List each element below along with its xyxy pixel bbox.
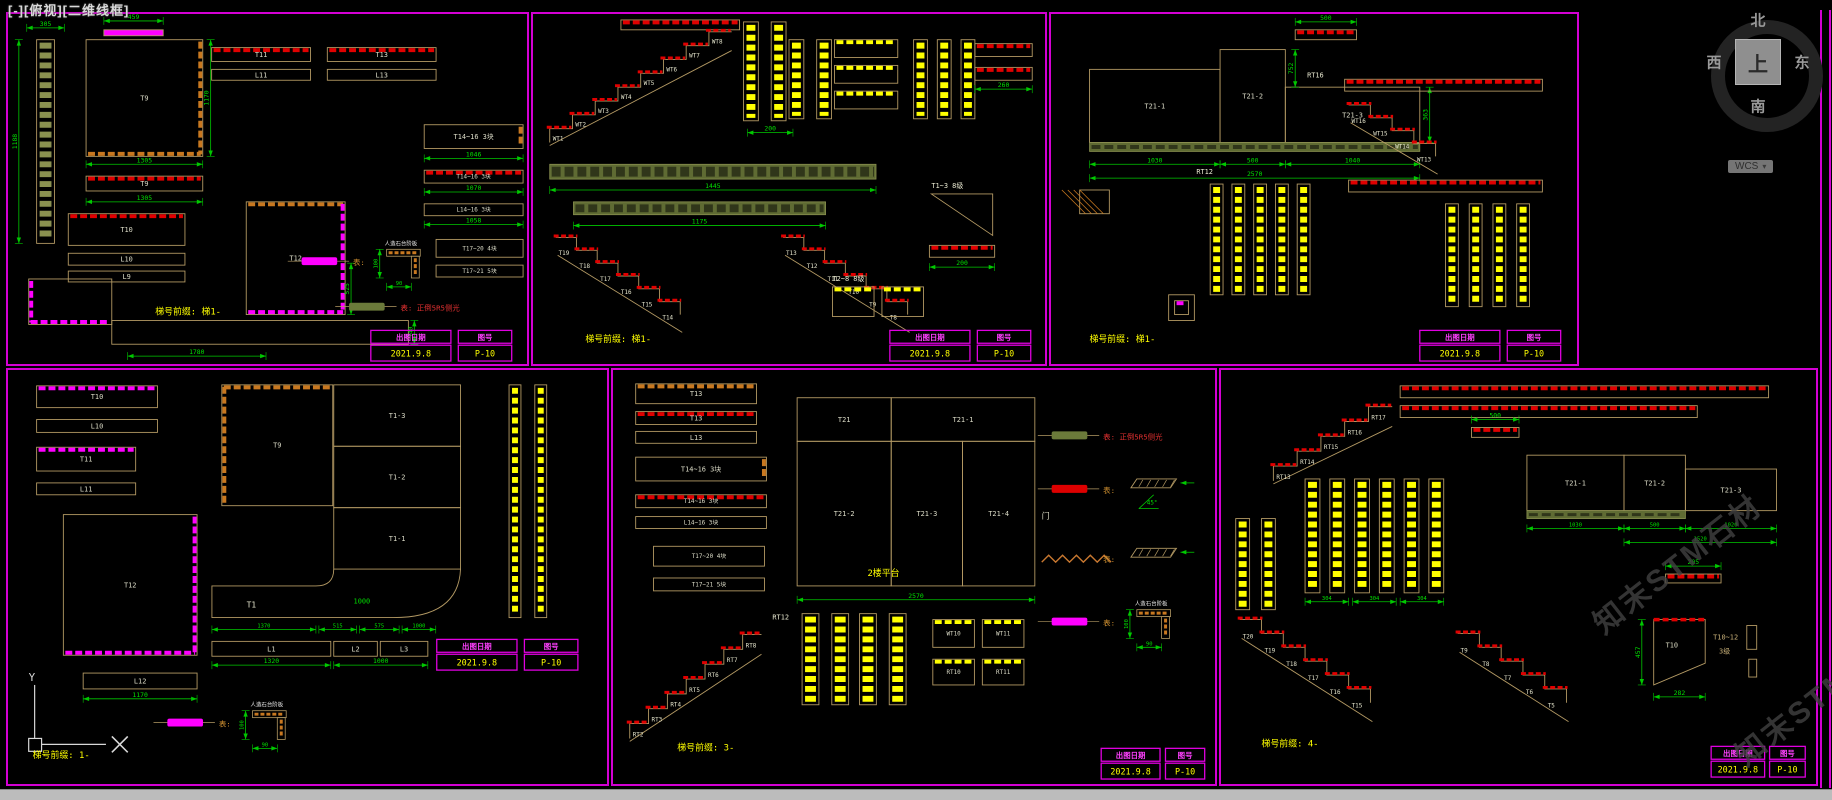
svg-text:RT5: RT5 [689, 687, 700, 694]
svg-text:T21-1: T21-1 [1565, 479, 1586, 487]
crosshatch-detail [1062, 190, 1109, 214]
svg-text:梯号前缀: 4-: 梯号前缀: 4- [1261, 737, 1318, 749]
part-outline [1295, 30, 1356, 40]
part-outline: T1-1 [334, 508, 461, 569]
svg-text:梯号前缀: 1-: 梯号前缀: 1- [33, 749, 90, 761]
dimension: 1305 [86, 194, 203, 206]
viewport-panel-5[interactable]: T13T13L13T14~16 3块T14~16 3块L14~16 3块T17~… [611, 368, 1217, 786]
dimension: 1170 [203, 40, 215, 157]
part-outline: RT10 [933, 659, 975, 685]
svg-text:1305: 1305 [137, 156, 153, 164]
svg-text:363: 363 [1422, 109, 1430, 121]
annotation-text: 梯号前缀: 3- [677, 741, 734, 753]
title-block: 出图日期图号2021.9.8P-10 [1101, 748, 1205, 779]
part-outline: T21-2 [797, 441, 891, 586]
svg-text:T1: T1 [247, 601, 257, 610]
annotation-text: 梯号前缀: 梯1- [155, 306, 221, 318]
svg-text:500: 500 [1247, 156, 1259, 164]
svg-text:2021.9.8: 2021.9.8 [1110, 767, 1151, 777]
svg-text:T8: T8 [1482, 661, 1490, 668]
svg-text:T6: T6 [1526, 689, 1534, 696]
part-outline [104, 30, 163, 36]
part-outline: T17~20 4块 [436, 239, 523, 257]
dimension: 1320 [212, 657, 331, 669]
svg-text:1780: 1780 [189, 348, 205, 356]
part-outline [1169, 295, 1195, 321]
view-cube-north[interactable]: 北 [1750, 10, 1765, 31]
svg-text:1000: 1000 [354, 598, 371, 606]
part-outline: T21-3 [1285, 87, 1419, 142]
dimension: 752 [1287, 50, 1299, 88]
dimension: 1000 [402, 624, 436, 634]
svg-text:T21-2: T21-2 [834, 510, 855, 518]
svg-text:1188: 1188 [11, 134, 19, 150]
legend-item: 表:人造石台阶板10090 [153, 701, 286, 753]
stair-run: T19T18T17T16T15T14 [554, 236, 683, 332]
svg-text:RT2: RT2 [633, 731, 644, 738]
part-outline [1349, 180, 1543, 192]
part-outline: T17~21 5块 [654, 578, 765, 591]
dimension: 1040 [1285, 156, 1419, 168]
part-outline [1345, 79, 1543, 91]
svg-text:90: 90 [1146, 641, 1153, 647]
hatched-strip [573, 202, 825, 215]
svg-text:T9: T9 [140, 180, 148, 188]
svg-text:WT10: WT10 [946, 630, 961, 637]
annotation-text: 梯号前缀: 梯1- [1090, 333, 1156, 345]
svg-text:T19: T19 [1264, 647, 1275, 654]
svg-text:P-10: P-10 [541, 658, 561, 668]
dimension: 304 [1305, 596, 1349, 606]
svg-text:L11: L11 [255, 71, 267, 79]
svg-text:90: 90 [262, 742, 269, 748]
svg-text:RT17: RT17 [1371, 415, 1386, 422]
svg-text:RT15: RT15 [1324, 444, 1339, 451]
svg-text:T21-3: T21-3 [1721, 486, 1742, 494]
annotation-text: RT16 [1307, 71, 1324, 79]
svg-text:RT12: RT12 [772, 614, 789, 622]
part-outline: RT11 [982, 659, 1024, 685]
svg-text:L12: L12 [134, 677, 147, 685]
part-outline: T21-1 [891, 398, 1035, 442]
svg-text:1175: 1175 [692, 218, 708, 226]
svg-text:1170: 1170 [132, 691, 148, 699]
annotation-text: 2楼平台 [867, 567, 899, 579]
svg-text:1305: 1305 [137, 194, 153, 202]
part-outline [929, 245, 994, 257]
view-cube-up[interactable]: 上 [1735, 39, 1781, 85]
svg-text:100: 100 [374, 259, 380, 269]
svg-text:T1-3: T1-3 [389, 412, 406, 420]
svg-text:出图日期: 出图日期 [915, 332, 945, 342]
part-outline: T9 [86, 40, 203, 157]
dimension: 1445 [550, 182, 876, 194]
dimension: 260 [975, 81, 1032, 93]
viewport-panel-2[interactable]: WT1WT2WT3WT4WT5WT6WT7WT826020014451175T1… [531, 12, 1047, 366]
svg-text:T8: T8 [890, 315, 898, 322]
svg-text:T1-2: T1-2 [389, 473, 406, 481]
svg-text:T5: T5 [1548, 703, 1556, 710]
part-outline: L9 [68, 271, 185, 282]
svg-text:出图日期: 出图日期 [1445, 332, 1475, 342]
svg-text:500: 500 [1320, 14, 1332, 22]
title-block: 出图日期图号2021.9.8P-10 [890, 330, 1031, 361]
svg-text:RT8: RT8 [746, 642, 757, 649]
svg-text:T12: T12 [124, 581, 137, 589]
svg-text:T9: T9 [869, 302, 877, 309]
svg-text:260: 260 [998, 81, 1010, 89]
part-outline: T10 [68, 214, 185, 246]
svg-text:2570: 2570 [1247, 170, 1263, 178]
hatched-bars [1236, 519, 1276, 610]
svg-text:2021.9.8: 2021.9.8 [457, 658, 497, 668]
svg-text:T18: T18 [1286, 661, 1297, 668]
viewport-panel-6[interactable]: RT13RT14RT15RT16RT17304304304500T21-1T21… [1219, 368, 1818, 786]
dimension: 305 [27, 20, 65, 32]
part-outline [29, 279, 112, 324]
part-outline: L1 [212, 641, 331, 656]
svg-text:WT1: WT1 [553, 136, 564, 143]
wcs-label: WCS [1735, 161, 1758, 172]
svg-text:梯号前缀: 梯1-: 梯号前缀: 梯1- [585, 333, 651, 345]
legend-item: 表: 正倒5R5侧光 [1038, 431, 1163, 441]
svg-text:WT11: WT11 [996, 630, 1011, 637]
svg-text:T21-1: T21-1 [953, 416, 974, 424]
part-outline: T21-1 [1090, 69, 1221, 142]
dimension: 575 [359, 624, 399, 634]
view-cube-east[interactable]: 东 [1794, 52, 1809, 73]
svg-text:200: 200 [764, 125, 776, 133]
svg-text:1370: 1370 [257, 624, 270, 630]
part-outline: T13 [327, 48, 436, 62]
hatched-bars [1210, 184, 1310, 295]
svg-text:T2~8 8级: T2~8 8级 [833, 274, 865, 283]
dimension: 1030 [1090, 156, 1221, 168]
dimension: 500 [1624, 522, 1685, 532]
svg-text:T17: T17 [1308, 675, 1319, 682]
part-outline: L14~16 3块 [424, 204, 523, 216]
svg-text:200: 200 [956, 259, 968, 267]
part-outline [834, 91, 897, 109]
svg-text:1058: 1058 [466, 217, 482, 225]
view-cube-south[interactable]: 南 [1750, 96, 1765, 117]
svg-text:T10: T10 [120, 226, 132, 234]
svg-text:T18: T18 [579, 263, 590, 270]
part-outline [975, 44, 1032, 57]
hatched-bars [914, 40, 975, 119]
svg-text:Y: Y [29, 671, 36, 684]
stair-run: T20T19T18T17T16T15 [1238, 618, 1373, 722]
part-outline: L10 [68, 253, 185, 265]
svg-text:梯号前缀: 梯1-: 梯号前缀: 梯1- [155, 306, 221, 318]
svg-text:RT10: RT10 [946, 669, 961, 676]
svg-text:T1-1: T1-1 [389, 535, 406, 543]
svg-text:RT16: RT16 [1348, 429, 1363, 436]
svg-text:100: 100 [1124, 619, 1130, 629]
svg-text:T13: T13 [786, 250, 797, 257]
wcs-selector[interactable]: WCS▾ [1728, 160, 1773, 173]
viewport-panel-4[interactable]: T10L10T11L11T12L121170T9T1-3T1-2T1-1T110… [6, 368, 609, 786]
svg-text:表: 正倒5R5侧光: 表: 正倒5R5侧光 [1103, 431, 1163, 441]
part-outline: T1-2 [334, 446, 461, 507]
part-outline: T21-1 [1527, 455, 1624, 510]
annotation-text: T1~3 8级 [931, 181, 963, 190]
dimension: 500 [1295, 14, 1356, 26]
title-block: 出图日期图号2021.9.8P-10 [371, 330, 512, 361]
svg-text:梯号前缀: 3-: 梯号前缀: 3- [677, 741, 734, 753]
dimension: 1370 [212, 624, 316, 634]
svg-text:T17~20 4块: T17~20 4块 [692, 552, 727, 560]
part-outline: L11 [37, 483, 136, 495]
part-outline: T13 [636, 412, 757, 425]
part-outline: T21 [797, 398, 891, 442]
svg-text:T10~12: T10~12 [1713, 633, 1738, 641]
stair-run: RT13RT14RT15RT16RT17 [1270, 405, 1392, 484]
legend-item: 表:人造石台阶板10090 [1038, 600, 1171, 652]
svg-text:出图日期: 出图日期 [1116, 750, 1146, 760]
dimension: 205 [1666, 558, 1721, 570]
svg-text:WT8: WT8 [712, 39, 723, 46]
annotation-text: 门 [1042, 511, 1050, 521]
svg-text:459: 459 [128, 13, 140, 21]
part-outline: L13 [327, 69, 436, 80]
part-outline: L11 [212, 69, 311, 80]
svg-text:500: 500 [1489, 412, 1501, 420]
svg-text:T13: T13 [375, 51, 387, 59]
view-cube[interactable]: 北 西 东 南 上 [1700, 6, 1816, 156]
svg-text:图号: 图号 [1178, 751, 1193, 760]
svg-text:WT3: WT3 [598, 108, 609, 115]
part-outline [1654, 620, 1706, 685]
dimension: 1058 [424, 217, 523, 229]
svg-text:T14~16 3块: T14~16 3块 [681, 465, 721, 474]
svg-text:T21: T21 [838, 416, 851, 424]
svg-text:T19: T19 [559, 250, 570, 257]
svg-text:T15: T15 [1352, 703, 1363, 710]
part-outline [975, 67, 1032, 80]
hatched-bars [1305, 479, 1444, 593]
svg-text:2021.9.8: 2021.9.8 [910, 349, 950, 359]
svg-text:RT6: RT6 [708, 672, 719, 679]
svg-text:RT14: RT14 [1300, 459, 1315, 466]
svg-text:T11: T11 [80, 456, 93, 464]
svg-text:525: 525 [343, 283, 351, 295]
svg-text:RT11: RT11 [996, 669, 1011, 676]
annotation-text: 3级 [1719, 646, 1730, 655]
svg-text:1170: 1170 [203, 90, 211, 106]
part-outline: T14~16 3块 [636, 457, 767, 481]
svg-text:出图日期: 出图日期 [1723, 748, 1753, 758]
dimension: 1070 [424, 184, 523, 196]
part-outline: L2 [334, 641, 378, 656]
svg-text:人造石台阶板: 人造石台阶板 [251, 701, 284, 709]
dimension: 304 [1400, 596, 1444, 606]
svg-text:T9: T9 [273, 442, 281, 450]
annotation-text: T1 [247, 601, 257, 610]
svg-text:P-10: P-10 [1777, 765, 1797, 775]
part-outline: L10 [37, 420, 158, 433]
svg-text:梯号前缀: 梯1-: 梯号前缀: 梯1- [1090, 333, 1156, 345]
cad-canvas: [-][俯视][二维线框] 北 西 东 南 上 WCS▾ 知末STM石材 知末S… [0, 0, 1832, 800]
svg-text:T14~16 3块: T14~16 3块 [454, 132, 494, 141]
annotation-text: T10~12 [1713, 633, 1738, 641]
svg-text:RT12: RT12 [1196, 168, 1213, 176]
svg-text:304: 304 [1369, 596, 1380, 602]
svg-text:WT7: WT7 [689, 53, 700, 60]
svg-text:T21-2: T21-2 [1644, 479, 1665, 487]
svg-text:RT3: RT3 [652, 717, 663, 724]
hatched-bars [37, 40, 55, 244]
svg-text:T14~16 3块: T14~16 3块 [684, 497, 719, 505]
dimension: 304 [1353, 596, 1397, 606]
part-outline: T14~16 3块 [636, 495, 767, 508]
svg-text:WT16: WT16 [1352, 118, 1367, 125]
viewport-panel-1[interactable]: 1188305T945911701305T91305T10L10L9T12525… [6, 12, 529, 366]
svg-text:WT6: WT6 [666, 66, 677, 73]
svg-text:752: 752 [1287, 62, 1295, 74]
part-outline: L3 [380, 641, 428, 656]
part-outline: T17~20 4块 [654, 546, 765, 566]
legend-item: 表: 正倒5R5侧光 [335, 303, 460, 313]
hatched-bars [509, 385, 547, 618]
hatched-strip [1090, 143, 1420, 152]
svg-text:WT5: WT5 [644, 80, 655, 87]
svg-text:1000: 1000 [373, 657, 389, 665]
svg-text:2570: 2570 [908, 592, 924, 600]
svg-text:2021.9.8: 2021.9.8 [391, 349, 431, 359]
svg-text:T10: T10 [91, 393, 104, 401]
part-outline: T21-2 [1624, 455, 1685, 510]
dimension: 1000 [334, 657, 428, 669]
svg-text:L13: L13 [690, 434, 703, 442]
hatched-bars [744, 22, 787, 121]
svg-text:WT2: WT2 [575, 122, 586, 129]
chevron-down-icon: ▾ [1762, 162, 1766, 171]
title-block: 出图日期图号2021.9.8P-10 [437, 639, 578, 670]
annotation-text: RT12 [1196, 168, 1213, 176]
dimension: 1780 [128, 348, 266, 360]
svg-text:P-10: P-10 [1524, 349, 1544, 359]
dimension: 2570 [797, 592, 1035, 604]
svg-text:表:: 表: [219, 719, 231, 729]
part-outline: T1-3 [334, 385, 461, 446]
viewport-panel-3[interactable]: 500T21-1T21-2T21-3103050010402570363752R… [1049, 12, 1579, 366]
svg-text:表:: 表: [1103, 618, 1115, 628]
svg-text:2楼平台: 2楼平台 [867, 567, 899, 579]
stair-run: T9T8T7T6T5 [1456, 632, 1569, 722]
part-outline [1666, 574, 1721, 583]
svg-text:2021.9.8: 2021.9.8 [1718, 765, 1759, 775]
dimension: 1170 [83, 691, 197, 703]
svg-text:500: 500 [1650, 522, 1660, 528]
svg-text:T17~21 5块: T17~21 5块 [462, 267, 497, 275]
svg-text:出图日期: 出图日期 [462, 641, 492, 651]
viewport-edge-lines [1820, 10, 1831, 788]
svg-text:表:: 表: [1103, 554, 1115, 564]
part-outline: T13 [636, 384, 757, 404]
svg-text:WT13: WT13 [1417, 156, 1432, 163]
svg-text:45°: 45° [1147, 500, 1158, 507]
svg-text:T9: T9 [140, 95, 148, 103]
view-cube-west[interactable]: 西 [1706, 52, 1721, 73]
dimension: 515 [319, 624, 357, 634]
part-outline: T21-3 [891, 441, 962, 586]
part-outline: T21-3 [1685, 469, 1776, 511]
svg-text:图号: 图号 [1780, 749, 1795, 758]
svg-text:1046: 1046 [466, 150, 482, 158]
part-outline: L13 [636, 431, 757, 443]
part-outline: T9 [222, 385, 333, 506]
part-outline: T10 [37, 386, 158, 408]
dimension: 1305 [86, 156, 203, 168]
dimension: 1020 [1685, 522, 1776, 532]
part-outline [1747, 626, 1757, 650]
svg-text:3级: 3级 [1719, 646, 1730, 655]
svg-text:L14~16 3块: L14~16 3块 [684, 519, 719, 527]
svg-text:人造石台阶板: 人造石台阶板 [385, 239, 418, 247]
svg-text:L10: L10 [120, 256, 132, 264]
dimension: 457 [1634, 620, 1646, 685]
dimension: 363 [1422, 87, 1434, 142]
svg-text:图号: 图号 [997, 333, 1012, 342]
svg-text:1030: 1030 [1147, 156, 1163, 164]
svg-text:575: 575 [374, 624, 384, 630]
part-outline: T14~16 3块 [424, 125, 523, 149]
svg-text:P-10: P-10 [1175, 767, 1195, 777]
hatched-bars [1445, 204, 1529, 307]
svg-text:RT4: RT4 [670, 702, 681, 709]
svg-text:图号: 图号 [478, 333, 493, 342]
part-outline [621, 20, 740, 30]
stair-run: T13T12T11T10T9T8 [781, 236, 910, 332]
svg-text:L2: L2 [351, 645, 359, 653]
part-outline: L12 [83, 673, 197, 689]
part-outline [1175, 301, 1189, 315]
hatched-bars [860, 614, 907, 705]
svg-text:L10: L10 [91, 422, 104, 430]
svg-text:表: 正倒5R5侧光: 表: 正倒5R5侧光 [400, 303, 460, 313]
viewport-controls[interactable]: [-][俯视][二维线框] [8, 0, 129, 19]
svg-text:L3: L3 [400, 645, 408, 653]
svg-text:L1: L1 [267, 645, 275, 653]
annotation-text: 梯号前缀: 1- [33, 749, 90, 761]
legend-item: 表: [1042, 548, 1195, 564]
hatched-strip [1527, 511, 1685, 519]
svg-text:WT4: WT4 [621, 94, 632, 101]
svg-text:457: 457 [1634, 646, 1642, 658]
svg-text:T11: T11 [255, 51, 267, 59]
svg-text:图号: 图号 [1527, 333, 1542, 342]
svg-text:RT16: RT16 [1307, 71, 1324, 79]
part-outline [1471, 427, 1519, 437]
svg-text:90: 90 [396, 281, 403, 287]
svg-text:P-10: P-10 [475, 349, 495, 359]
svg-text:WT14: WT14 [1395, 143, 1410, 150]
taskbar[interactable] [0, 789, 1832, 800]
svg-text:T20: T20 [1243, 633, 1254, 640]
part-outline: T9 [86, 176, 203, 191]
annotation-text: 1000 [354, 598, 371, 606]
svg-text:出图日期: 出图日期 [396, 332, 426, 342]
svg-text:282: 282 [1674, 689, 1686, 697]
hatched-bars [802, 614, 849, 705]
hatched-bars [789, 40, 832, 119]
svg-text:L11: L11 [80, 485, 93, 493]
part-outline [1400, 386, 1768, 398]
svg-text:2021.9.8: 2021.9.8 [1440, 349, 1480, 359]
svg-text:1445: 1445 [705, 182, 721, 190]
svg-text:T21-3: T21-3 [916, 510, 937, 518]
